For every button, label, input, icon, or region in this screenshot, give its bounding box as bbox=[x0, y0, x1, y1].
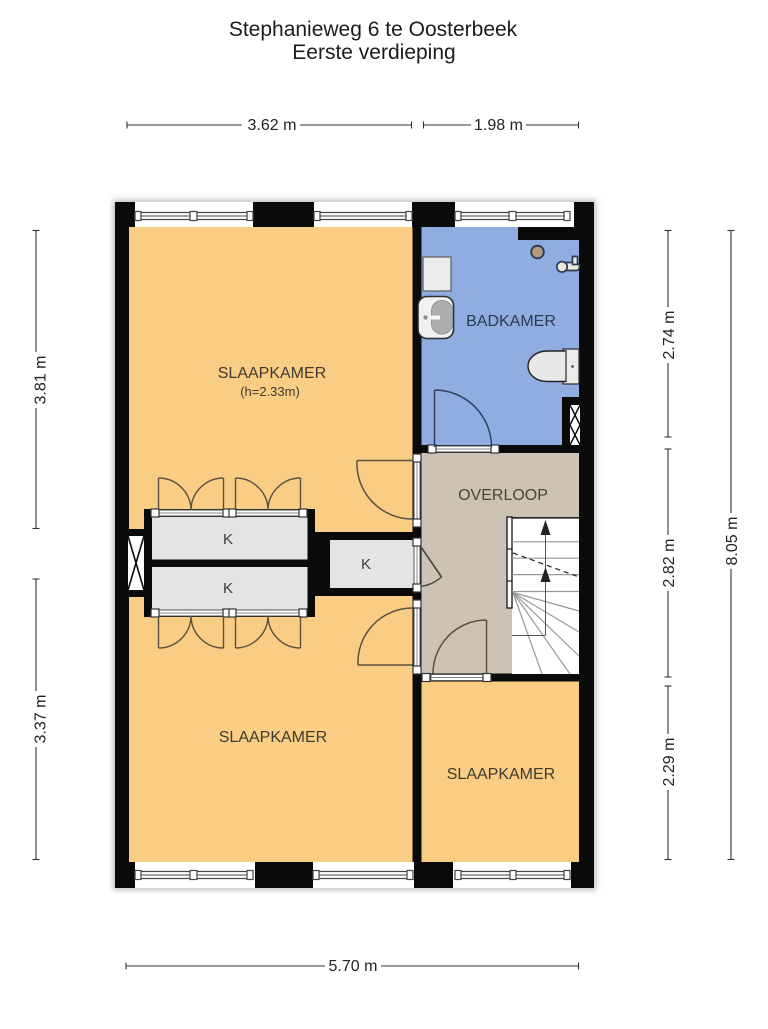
svg-text:OVERLOOP: OVERLOOP bbox=[458, 487, 548, 504]
svg-text:SLAAPKAMER: SLAAPKAMER bbox=[447, 766, 555, 783]
svg-text:SLAAPKAMER: SLAAPKAMER bbox=[218, 365, 326, 382]
svg-text:(h=2.33m): (h=2.33m) bbox=[240, 384, 300, 399]
svg-text:2.29 m: 2.29 m bbox=[661, 738, 678, 787]
svg-text:Eerste verdieping: Eerste verdieping bbox=[292, 41, 455, 64]
svg-text:8.05 m: 8.05 m bbox=[724, 517, 741, 566]
svg-text:K: K bbox=[223, 580, 233, 597]
svg-text:3.37 m: 3.37 m bbox=[33, 695, 50, 744]
svg-text:2.74 m: 2.74 m bbox=[661, 311, 678, 360]
svg-text:3.62 m: 3.62 m bbox=[248, 117, 297, 134]
svg-text:3.81 m: 3.81 m bbox=[33, 356, 50, 405]
svg-text:5.70 m: 5.70 m bbox=[329, 958, 378, 975]
svg-text:K: K bbox=[361, 556, 371, 573]
svg-text:Stephanieweg 6 te Oosterbeek: Stephanieweg 6 te Oosterbeek bbox=[229, 18, 518, 41]
svg-text:SLAAPKAMER: SLAAPKAMER bbox=[219, 729, 327, 746]
svg-text:K: K bbox=[223, 531, 233, 548]
svg-text:BADKAMER: BADKAMER bbox=[466, 313, 556, 330]
svg-text:1.98 m: 1.98 m bbox=[474, 117, 523, 134]
svg-text:2.82 m: 2.82 m bbox=[661, 539, 678, 588]
